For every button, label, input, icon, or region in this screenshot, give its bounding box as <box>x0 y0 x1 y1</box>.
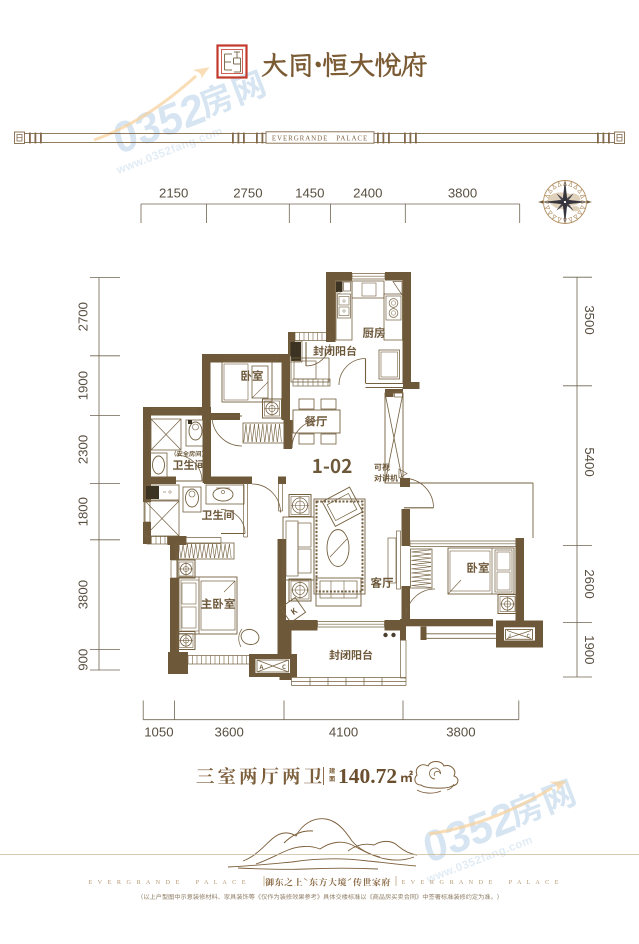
svg-text:EVERGRANDE PALACE: EVERGRANDE PALACE <box>272 134 368 142</box>
svg-text:3800: 3800 <box>448 186 477 201</box>
svg-text:3800: 3800 <box>446 725 475 740</box>
svg-text:1450: 1450 <box>295 186 324 201</box>
svg-text:1900: 1900 <box>582 635 597 664</box>
svg-text:3800: 3800 <box>76 580 91 609</box>
svg-text:1050: 1050 <box>144 725 173 740</box>
svg-text:5400: 5400 <box>582 447 597 476</box>
svg-text:2300: 2300 <box>76 435 91 464</box>
svg-text:2150: 2150 <box>159 186 188 201</box>
svg-text:140.72: 140.72 <box>338 764 397 788</box>
svg-text:1800: 1800 <box>76 497 91 526</box>
svg-text:3500: 3500 <box>582 305 597 334</box>
svg-text:E V E R G R A N D E P A L A: E V E R G R A N D E P A L A C E <box>88 879 247 886</box>
svg-text:3600: 3600 <box>215 725 244 740</box>
svg-text:1900: 1900 <box>76 371 91 400</box>
svg-text:2400: 2400 <box>353 186 382 201</box>
svg-text:2700: 2700 <box>76 302 91 331</box>
svg-text:2750: 2750 <box>233 186 262 201</box>
svg-text:2600: 2600 <box>582 569 597 598</box>
svg-text:E V E R G R A N D E P A L A: E V E R G R A N D E P A L A C E <box>401 879 560 886</box>
svg-text:4100: 4100 <box>329 725 358 740</box>
svg-text:900: 900 <box>76 649 91 671</box>
